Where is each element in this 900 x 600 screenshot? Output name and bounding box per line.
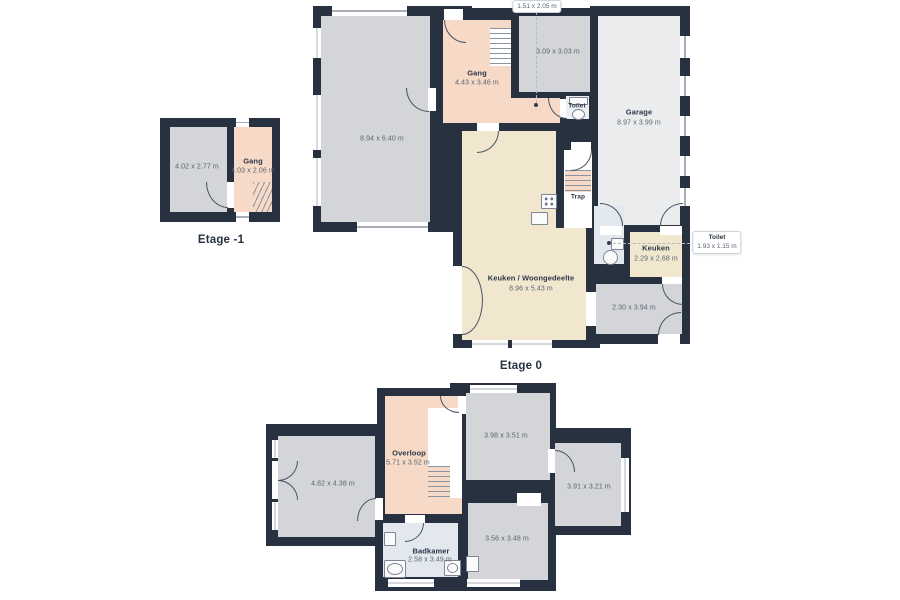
window: [680, 76, 690, 96]
window: [467, 579, 520, 587]
room-name: Overloop: [392, 449, 426, 458]
room-dims: 3.09 x 3.03 m: [536, 49, 580, 56]
door-opening: [477, 123, 499, 131]
window: [470, 385, 517, 393]
door-opening: [375, 498, 383, 520]
room-name: Keuken / Woongedeelte: [488, 274, 575, 283]
door-opening: [658, 334, 680, 344]
room-dims: 4.43 x 3.46 m: [455, 80, 499, 87]
door-opening: [444, 9, 463, 20]
stairs-overloop: [428, 466, 450, 498]
door-opening: [600, 226, 622, 235]
room-dims: 4.03 x 2.06 m: [231, 168, 275, 175]
window: [388, 579, 434, 587]
door-opening: [662, 277, 682, 284]
room-dims: 8.94 x 6.40 m: [360, 136, 404, 143]
window: [680, 36, 690, 58]
stairs-gang-e0: [490, 28, 511, 66]
window: [621, 458, 629, 512]
window: [313, 95, 321, 150]
door-opening: [453, 266, 462, 334]
room-keuken: [630, 232, 682, 277]
wc-fixture: [572, 109, 585, 120]
door-opening: [571, 142, 591, 150]
door-opening: [517, 493, 541, 506]
window: [472, 340, 508, 348]
door-opening: [586, 292, 596, 326]
window: [313, 28, 321, 58]
callout-dot: [607, 241, 611, 245]
window: [680, 116, 690, 136]
window: [357, 222, 428, 232]
bathtub-inner: [387, 563, 403, 575]
door-opening: [227, 182, 234, 208]
callout-dims: 1.93 x 1.15 m: [697, 243, 736, 250]
radiator-fixture: [466, 556, 479, 572]
sink-fixture: [384, 532, 396, 546]
room-dims: 3.98 x 3.51 m: [484, 433, 528, 440]
room-name: Garage: [626, 108, 652, 117]
room-name: Toilet: [568, 103, 585, 110]
room-dims: 5.71 x 3.52 m: [386, 460, 430, 467]
room-dims: 2.30 x 3.94 m: [612, 305, 656, 312]
door-opening: [660, 226, 682, 235]
room-dims: 2.58 x 3.49 m: [408, 557, 452, 564]
stairs-trap: [565, 170, 591, 192]
room-dims: 3.56 x 3.48 m: [485, 536, 529, 543]
floor-label-etage-minus1: Etage -1: [198, 234, 244, 246]
room-living: [321, 16, 430, 222]
window: [272, 440, 278, 458]
sink-fixture: [611, 238, 624, 250]
door-opening: [548, 449, 555, 473]
room-name: Gang: [243, 157, 263, 166]
callout-dims: 1.51 x 2.05 m: [517, 3, 556, 10]
stove-fixture: [541, 194, 557, 209]
callout-name: Toilet: [697, 233, 736, 242]
shower-inner: [447, 563, 458, 573]
window: [313, 158, 321, 206]
callout-dot: [534, 103, 538, 107]
floorplan-canvas: 4.02 x 2.77 m Gang 4.03 x 2.06 m Etage -…: [0, 0, 900, 600]
window: [512, 340, 552, 348]
door-opening: [458, 396, 466, 414]
room-dims: 4.82 x 4.38 m: [311, 481, 355, 488]
callout-leader: [536, 12, 537, 103]
room-name: Keuken: [642, 244, 670, 253]
room-name: Gang: [467, 69, 487, 78]
callout-toilet: Toilet 1.93 x 1.15 m: [692, 231, 741, 254]
door-opening: [428, 88, 436, 111]
counter-fixture: [531, 212, 548, 225]
room-dims: 2.29 x 2.68 m: [634, 256, 678, 263]
window: [680, 156, 690, 176]
room-name: Badkamer: [412, 547, 449, 556]
callout-vestibule: 1.51 x 2.05 m: [512, 0, 561, 13]
stairs-m1: [253, 182, 272, 212]
room-dims: 4.02 x 2.77 m: [175, 164, 219, 171]
door-opening: [405, 515, 425, 523]
room-dims: 8.96 x 5.43 m: [509, 286, 553, 293]
floor-label-etage-0: Etage 0: [500, 360, 542, 372]
room-dims: 8.97 x 3.99 m: [617, 120, 661, 127]
window: [236, 118, 249, 127]
window: [332, 6, 407, 16]
room-dims: 3.91 x 3.21 m: [567, 484, 611, 491]
room-name: Trap: [571, 194, 585, 201]
window: [236, 212, 249, 222]
wc-fixture: [603, 250, 618, 265]
window: [272, 502, 278, 530]
